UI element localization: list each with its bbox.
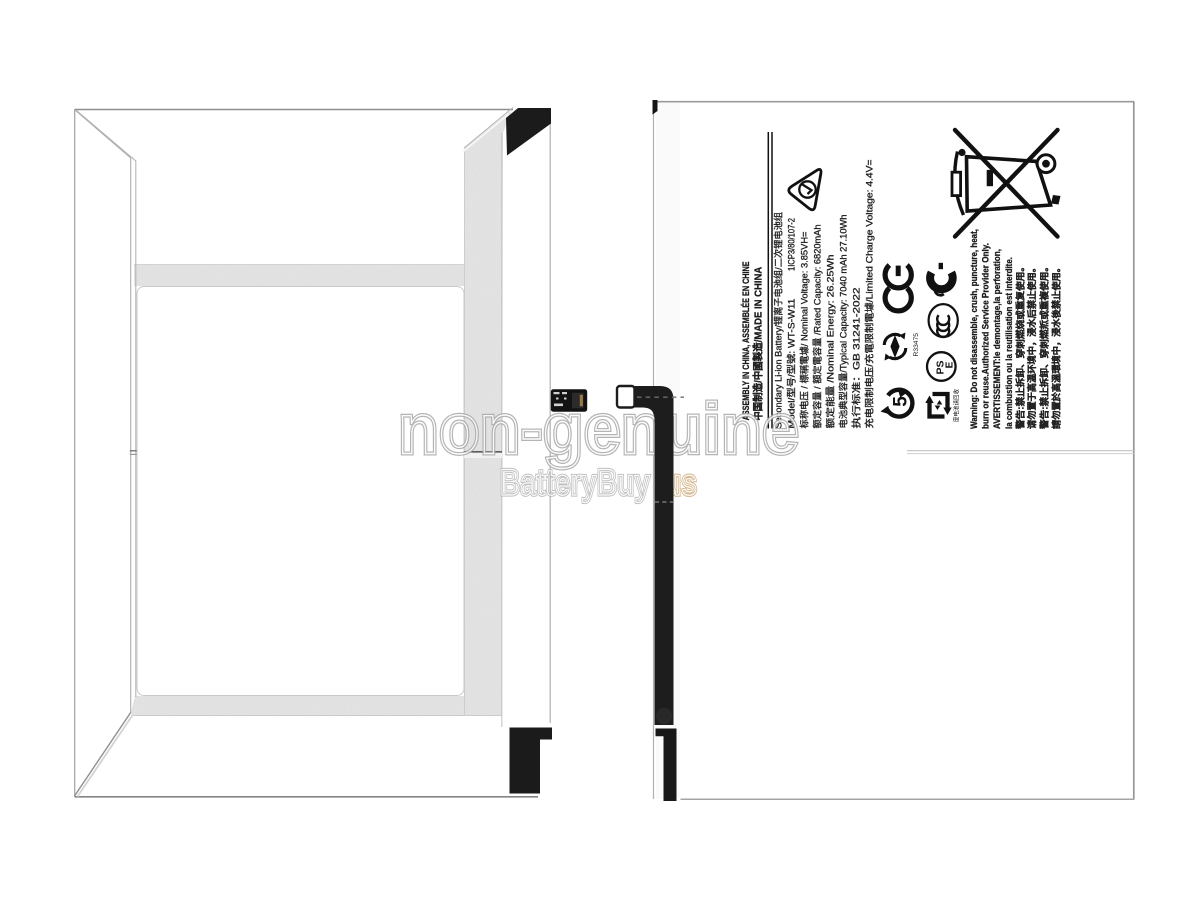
svg-text:充电限制电压/充電限制電壉/Limited Charge V: 充电限制电压/充電限制電壉/Limited Charge Voltage: 4.… (864, 160, 875, 429)
svg-text:废电池请回收: 废电池请回收 (953, 389, 961, 422)
svg-text:1ICP3/80/107-2: 1ICP3/80/107-2 (787, 218, 797, 271)
svg-text:执行标准：GB 31241-2022: 执行标准：GB 31241-2022 (851, 288, 862, 429)
svg-text:burn or reuse.Authorized Servi: burn or reuse.Authorized Service Provide… (981, 243, 991, 429)
svg-text:警告:禁止拆卸、穿刺燃烧或重复使用。: 警告:禁止拆卸、穿刺燃烧或重复使用。 (1015, 262, 1026, 429)
svg-text:AVERTISSEMENT:le demontage,la: AVERTISSEMENT:le demontage,la perforatio… (992, 249, 1002, 429)
svg-text:non-genuine: non-genuine (398, 391, 799, 470)
svg-text:标称电压 / 標稱電壉/ Nominal Voltage:: 标称电压 / 標稱電壉/ Nominal Voltage: 3.85VH= (799, 232, 810, 429)
svg-text:BatteryBuy: BatteryBuy (500, 462, 650, 503)
svg-text:請勿置於高溫環境中，浸水後禁止使用。: 請勿置於高溫環境中，浸水後禁止使用。 (1051, 263, 1062, 429)
svg-text:额定容量 / 額定電容量 /Rated Capacity:: 额定容量 / 額定電容量 /Rated Capacity: 6820mAh (812, 225, 823, 429)
svg-text:额定能量 /Nominal Energy: 26.25Wh: 额定能量 /Nominal Energy: 26.25Wh (825, 255, 836, 429)
svg-text:电池典型容量/Typical Capacity: 7040: 电池典型容量/Typical Capacity: 7040 mAh 27.10W… (838, 215, 849, 429)
svg-text:la combustion ou la reutilisat: la combustion ou la reutilisation est in… (1004, 257, 1014, 429)
svg-text:5: 5 (891, 396, 912, 407)
svg-text:警告:禁止拆卸、穿刺燃焎或重複使用。: 警告:禁止拆卸、穿刺燃焎或重複使用。 (1038, 262, 1049, 429)
svg-text:E: E (945, 361, 956, 368)
svg-text:请勿置于高温环境中，浸水后禁止使用。: 请勿置于高温环境中，浸水后禁止使用。 (1026, 263, 1037, 429)
svg-text:R33475: R33475 (913, 332, 920, 356)
svg-text:Warning: Do not disassemble, c: Warning: Do not disassemble, crush, punc… (969, 229, 979, 429)
